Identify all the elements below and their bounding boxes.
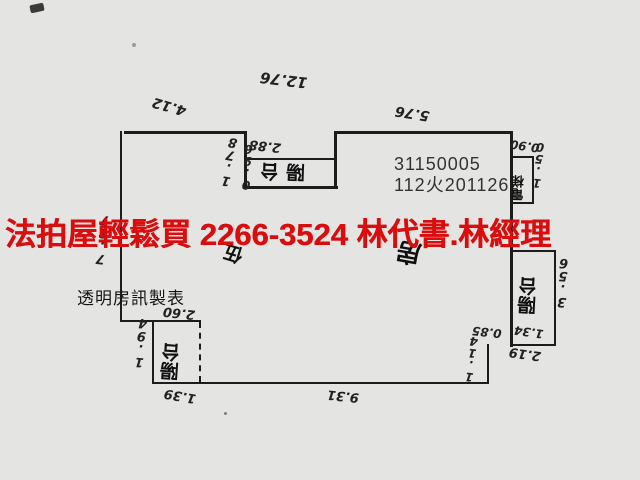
wall-top-balcony-right bbox=[334, 131, 337, 189]
scan-speck bbox=[132, 43, 136, 47]
room-label-left-balcony: 陽台 bbox=[161, 326, 184, 381]
dimension-elevator-side: 1.50 bbox=[530, 150, 545, 191]
case-number: 31150005 bbox=[394, 154, 509, 175]
dimension-bottom-step-width: 2.19 bbox=[508, 345, 542, 362]
wall-left-balcony-dashed bbox=[199, 322, 201, 382]
wall-elevator-top bbox=[512, 156, 534, 158]
watermark-text: 透明房訊製表 bbox=[77, 284, 185, 309]
dimension-bottom-step-height: 1.14 bbox=[462, 339, 479, 384]
ad-overlay-text: 法拍屋輕鬆買 2266-3524 林代書.林經理 bbox=[5, 209, 640, 254]
scan-speck bbox=[224, 412, 227, 415]
wall-top-right bbox=[334, 131, 513, 134]
dimension-right-balcony-height: 3.56 bbox=[555, 263, 570, 310]
wall-bottom-step bbox=[487, 344, 489, 384]
wall-top-balcony-bottom bbox=[244, 186, 338, 189]
room-label-top-balcony: 陽台 bbox=[253, 160, 306, 181]
dimension-right-balcony-width: 1.34 bbox=[513, 324, 544, 340]
room-label-elevator: 電梯 bbox=[512, 161, 526, 201]
dimension-top-step: 1.78 bbox=[218, 143, 238, 189]
scan-speck bbox=[29, 3, 44, 14]
dimension-bottom-width: 9.31 bbox=[326, 387, 359, 403]
reference-number: 112火201126 bbox=[394, 175, 509, 196]
room-label-right-balcony: 陽台 bbox=[519, 261, 541, 316]
dimension-left-balcony-height: 1.94 bbox=[132, 325, 149, 370]
wall-bottom bbox=[152, 382, 489, 384]
wall-top-left bbox=[124, 131, 246, 134]
dimension-left-balcony-bottom: 1.39 bbox=[163, 386, 197, 404]
dimension-total-width: 12.76 bbox=[259, 69, 308, 90]
wall-right-balcony-inner bbox=[510, 253, 513, 347]
dimension-right-wing-top: 5.76 bbox=[394, 103, 430, 122]
dimension-left-wing-top: 4.12 bbox=[151, 95, 188, 118]
wall-elevator-bottom bbox=[512, 202, 534, 204]
wall-left-balcony-left bbox=[152, 320, 154, 384]
floor-plan-scan: 12.76 5.76 4.12 2.88 1.78 0.96 7.87 0.90… bbox=[0, 0, 640, 480]
survey-number-block: 31150005 112火201126 bbox=[394, 154, 509, 196]
